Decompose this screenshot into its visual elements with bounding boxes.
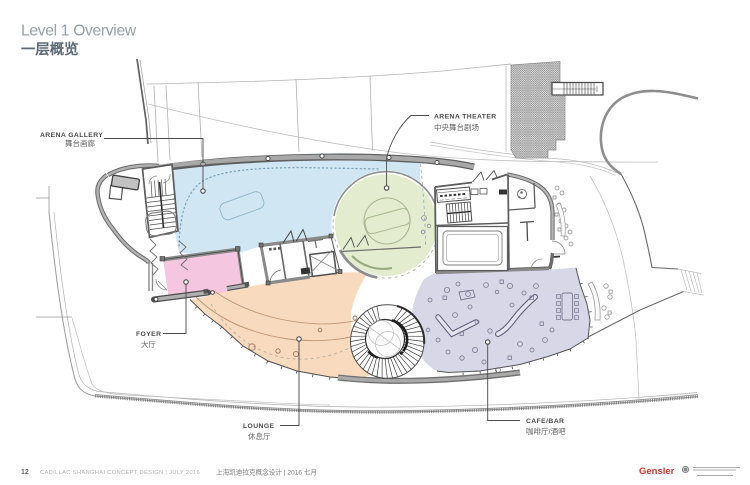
svg-text:上海凯迪拉克概念设计 | 2016 七月: 上海凯迪拉克概念设计 | 2016 七月 <box>216 468 317 477</box>
svg-text:休息厅: 休息厅 <box>248 431 271 441</box>
svg-text:Level 1 Overview: Level 1 Overview <box>21 23 137 40</box>
svg-text:CADILLAC SHANGHAI CONCEPT DESI: CADILLAC SHANGHAI CONCEPT DESIGN | JULY … <box>40 470 200 476</box>
svg-text:CAFE/BAR: CAFE/BAR <box>526 418 564 425</box>
svg-text:舞台画廊: 舞台画廊 <box>65 138 95 148</box>
svg-text:咖啡厅/酒吧: 咖啡厅/酒吧 <box>526 426 566 436</box>
svg-text:ARENA GALLERY: ARENA GALLERY <box>40 132 103 139</box>
svg-text:Gensler: Gensler <box>639 466 675 477</box>
svg-text:中央舞台剧场: 中央舞台剧场 <box>434 122 479 132</box>
svg-text:FOYER: FOYER <box>136 331 161 338</box>
svg-text:一层概览: 一层概览 <box>21 40 79 58</box>
svg-text:12: 12 <box>21 469 29 476</box>
svg-text:ARENA THEATER: ARENA THEATER <box>434 114 497 121</box>
svg-text:大厅: 大厅 <box>141 339 156 349</box>
svg-text:LOUNGE: LOUNGE <box>243 423 275 430</box>
